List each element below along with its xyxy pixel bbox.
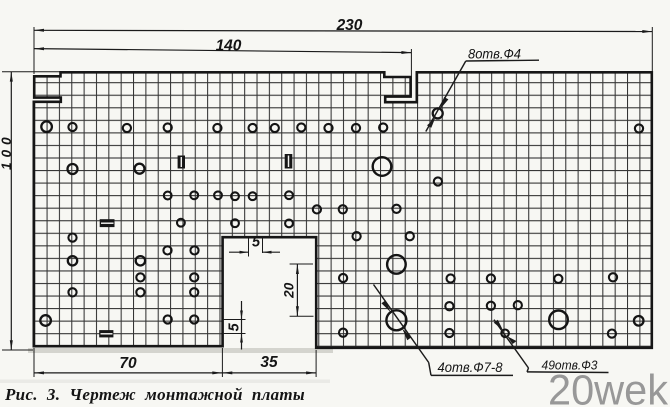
svg-text:35: 35 bbox=[260, 354, 278, 371]
svg-text:140: 140 bbox=[216, 37, 242, 54]
svg-text:Рис. 3. Чертеж монтажной п: Рис. 3. Чертеж монтажной платы bbox=[4, 385, 305, 404]
svg-text:20wek: 20wek bbox=[548, 367, 668, 407]
svg-text:230: 230 bbox=[336, 17, 363, 34]
svg-text:8отв.Ф4: 8отв.Ф4 bbox=[468, 47, 521, 62]
svg-text:20: 20 bbox=[281, 282, 296, 299]
svg-text:4отв.Ф7-8: 4отв.Ф7-8 bbox=[438, 359, 503, 375]
svg-text:70: 70 bbox=[119, 355, 137, 372]
svg-text:5: 5 bbox=[252, 235, 261, 251]
svg-text:5: 5 bbox=[226, 322, 242, 331]
svg-text:100: 100 bbox=[0, 133, 14, 170]
